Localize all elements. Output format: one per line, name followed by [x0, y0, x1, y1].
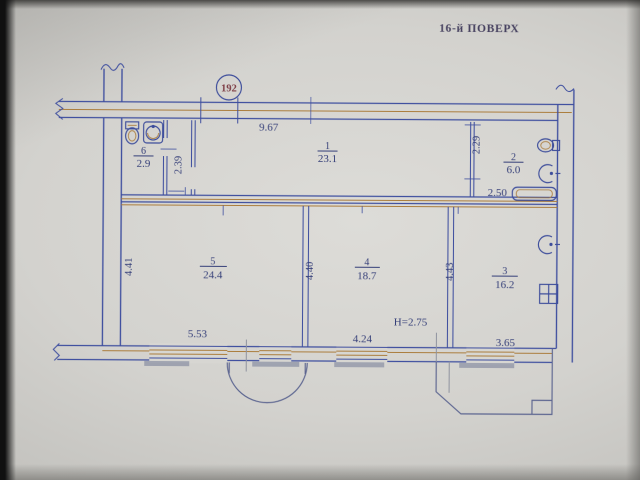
loggia-step: [532, 400, 552, 414]
room-4-number: 4: [364, 257, 369, 268]
wall-top-tan: [59, 109, 572, 112]
room-1-number: 1: [325, 141, 330, 152]
room-3-number: 3: [502, 266, 507, 277]
wall-bath6-partition: [163, 120, 167, 195]
dim-room3-width: 3.65: [496, 337, 516, 349]
room-3-area: 16.2: [495, 279, 514, 291]
dim-vestibule-depth: 2.39: [173, 156, 184, 174]
floorplan-svg: 16-й ПОВЕРХ 192 1 23.1 6 2.9 2 6.0: [0, 0, 640, 480]
floorplan-photo: 16-й ПОВЕРХ 192 1 23.1 6 2.9 2 6.0: [0, 0, 640, 480]
room-1-label: 1 23.1: [317, 141, 337, 165]
washbasin-icon: [144, 122, 163, 143]
window-sill-2: [252, 362, 299, 367]
wall-top-inner: [59, 117, 558, 120]
window-sill-3: [334, 362, 384, 367]
room-1-area: 23.1: [318, 153, 337, 165]
dim-room4-depth-right: 4.43: [445, 263, 456, 281]
wall-top-outer: [59, 101, 574, 104]
room-4-area: 18.7: [357, 270, 377, 282]
dim-room4-width: 4.24: [353, 333, 373, 345]
room-2-label: 2 6.0: [503, 152, 523, 176]
apartment-badge: 192: [216, 75, 241, 100]
wall-vestibule-partition: [191, 120, 195, 195]
dim-room5-depth: 4.41: [124, 258, 135, 276]
room-6-number: 6: [141, 146, 146, 157]
wall-mid-3: [121, 202, 557, 205]
apartment-badge-number: 192: [221, 83, 237, 94]
bathtub-icon: [512, 187, 556, 200]
dim-room5-width: 5.53: [188, 328, 208, 340]
dim-ceiling-height: H=2.75: [394, 316, 428, 328]
dim-bathroom-width: 2.50: [488, 187, 508, 199]
wall-right-inner: [556, 104, 557, 348]
toilet-icon: [126, 122, 139, 144]
room-2-area: 6.0: [507, 164, 521, 176]
wall-mid-4: [121, 205, 557, 208]
room-5-area: 24.4: [203, 269, 223, 281]
walls: [53, 63, 574, 363]
wall-left-inner: [120, 118, 121, 346]
window-sill-1: [144, 361, 189, 366]
room-6-label: 6 2.9: [133, 146, 153, 170]
balcony-arc: [227, 362, 307, 402]
room-5-label: 5 24.4: [200, 256, 227, 281]
stove-icon: [540, 284, 558, 303]
page-title: 16-й ПОВЕРХ: [439, 23, 519, 35]
dim-room4-depth-left: 4.40: [305, 262, 316, 280]
room-5-number: 5: [210, 256, 215, 267]
room-4-label: 4 18.7: [355, 257, 380, 282]
wall-right-outer: [572, 90, 574, 363]
window-sill-4: [459, 363, 514, 368]
wall-break-right: [556, 85, 574, 91]
room-2-number: 2: [511, 152, 516, 163]
wall-mid-2: [121, 199, 557, 202]
wall-left-outer: [102, 118, 103, 346]
room-3-label: 3 16.2: [492, 266, 518, 291]
toilet-icon-2: [538, 139, 560, 152]
room-6-area: 2.9: [137, 158, 151, 170]
wall-bath2-partition: [470, 122, 474, 197]
dim-hall-top-width: 9.67: [259, 122, 279, 134]
dim-bathroom-depth: 2.29: [472, 136, 483, 154]
